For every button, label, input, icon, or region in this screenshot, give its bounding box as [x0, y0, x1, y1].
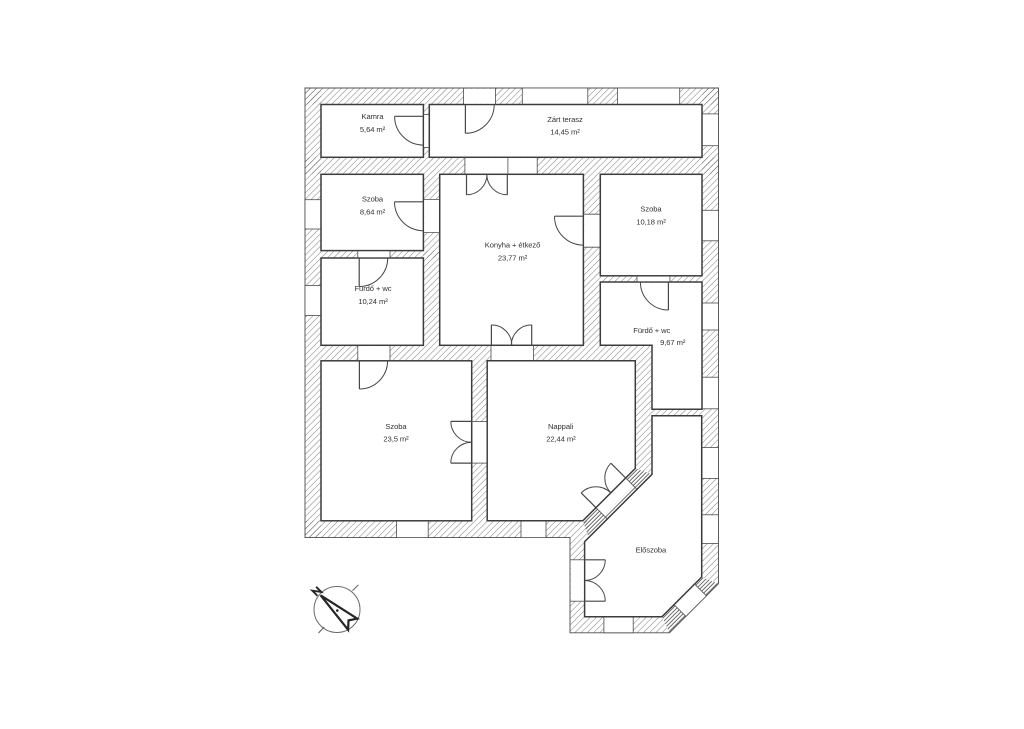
svg-text:Nappali: Nappali — [548, 422, 574, 431]
svg-text:Előszoba: Előszoba — [636, 545, 667, 554]
svg-text:Fürdő + wc: Fürdő + wc — [633, 326, 670, 335]
svg-text:22,44 m²: 22,44 m² — [546, 435, 576, 444]
svg-text:Szoba: Szoba — [385, 422, 407, 431]
svg-text:8,64 m²: 8,64 m² — [360, 207, 386, 216]
svg-text:Szoba: Szoba — [640, 205, 662, 214]
svg-text:9,67 m²: 9,67 m² — [660, 338, 686, 347]
svg-text:Kamra: Kamra — [362, 112, 385, 121]
svg-text:Zárt terasz: Zárt terasz — [547, 115, 583, 124]
svg-text:10,18 m²: 10,18 m² — [636, 217, 666, 226]
svg-text:23,5 m²: 23,5 m² — [383, 435, 409, 444]
svg-text:Konyha + étkező: Konyha + étkező — [485, 241, 541, 250]
svg-text:23,77 m²: 23,77 m² — [498, 253, 528, 262]
svg-text:10,24 m²: 10,24 m² — [358, 297, 388, 306]
svg-text:14,45 m²: 14,45 m² — [550, 128, 580, 137]
svg-text:5,64 m²: 5,64 m² — [360, 125, 386, 134]
svg-text:Szoba: Szoba — [362, 194, 384, 203]
svg-text:Fürdő + wc: Fürdő + wc — [355, 284, 392, 293]
